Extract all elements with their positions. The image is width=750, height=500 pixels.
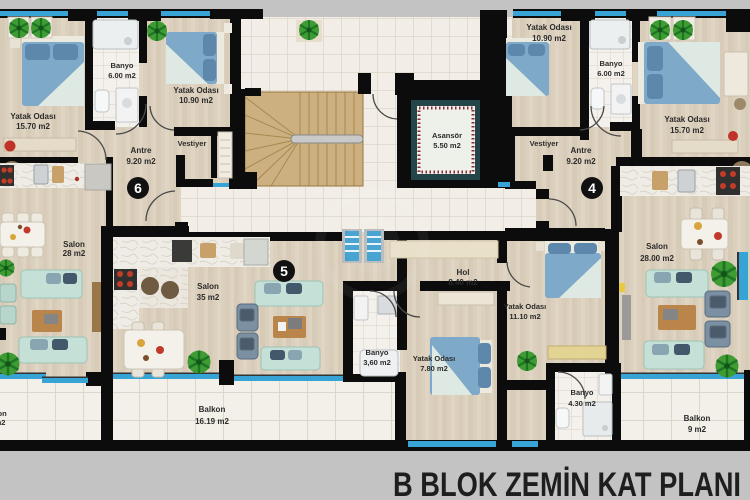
svg-text:Vestiyer: Vestiyer [178, 139, 207, 148]
svg-text:Salon: Salon [646, 242, 668, 251]
svg-text:15.70 m2: 15.70 m2 [16, 122, 50, 131]
svg-text:Yatak Odası: Yatak Odası [413, 354, 456, 363]
svg-text:9.20 m2: 9.20 m2 [566, 157, 596, 166]
svg-text:6: 6 [134, 180, 142, 196]
svg-text:Yatak Odası: Yatak Odası [526, 23, 571, 32]
svg-text:Hol: Hol [457, 268, 470, 277]
svg-text:Yatak Odası: Yatak Odası [10, 112, 55, 121]
svg-text:7.80 m2: 7.80 m2 [420, 364, 448, 373]
svg-text:10.90 m2: 10.90 m2 [532, 34, 566, 43]
svg-text:Yatak Odası: Yatak Odası [664, 115, 709, 124]
svg-text:Salon: Salon [63, 240, 85, 249]
svg-text:28 m2: 28 m2 [63, 249, 86, 258]
svg-text:Antre: Antre [131, 146, 152, 155]
svg-text:9 m2: 9 m2 [688, 425, 707, 434]
svg-text:11.10 m2: 11.10 m2 [509, 312, 540, 321]
svg-text:Balkon: Balkon [684, 414, 711, 423]
svg-text:4.30 m2: 4.30 m2 [568, 399, 596, 408]
svg-text:16.19 m2: 16.19 m2 [195, 417, 229, 426]
svg-text:6.00 m2: 6.00 m2 [108, 71, 136, 80]
svg-text:kon: kon [0, 409, 7, 418]
svg-text:Banyo: Banyo [111, 61, 134, 70]
svg-text:5.50 m2: 5.50 m2 [433, 141, 461, 150]
svg-text:m2: m2 [0, 418, 5, 427]
svg-text:Banyo: Banyo [600, 59, 623, 68]
svg-text:3,60 m2: 3,60 m2 [363, 358, 391, 367]
svg-text:Antre: Antre [571, 146, 592, 155]
svg-text:Yatak Odası: Yatak Odası [504, 302, 547, 311]
svg-text:10.90 m2: 10.90 m2 [179, 96, 213, 105]
svg-text:5: 5 [280, 263, 288, 279]
svg-text:Salon: Salon [197, 282, 219, 291]
svg-text:8.40 m2: 8.40 m2 [448, 278, 478, 287]
svg-text:Balkon: Balkon [199, 405, 226, 414]
svg-text:Vestiyer: Vestiyer [530, 139, 559, 148]
svg-text:Yatak Odası: Yatak Odası [173, 86, 218, 95]
svg-text:15.70 m2: 15.70 m2 [670, 126, 704, 135]
svg-text:4: 4 [588, 180, 596, 196]
svg-text:28.00 m2: 28.00 m2 [640, 254, 674, 263]
svg-text:9.20 m2: 9.20 m2 [126, 157, 156, 166]
svg-text:6.00 m2: 6.00 m2 [597, 69, 625, 78]
svg-text:B BLOK ZEMİN KAT PLANI: B BLOK ZEMİN KAT PLANI [393, 466, 741, 500]
svg-text:Banyo: Banyo [571, 388, 594, 397]
svg-text:Asansör: Asansör [432, 131, 462, 140]
svg-text:35 m2: 35 m2 [197, 293, 220, 302]
svg-text:Banyo: Banyo [366, 348, 389, 357]
